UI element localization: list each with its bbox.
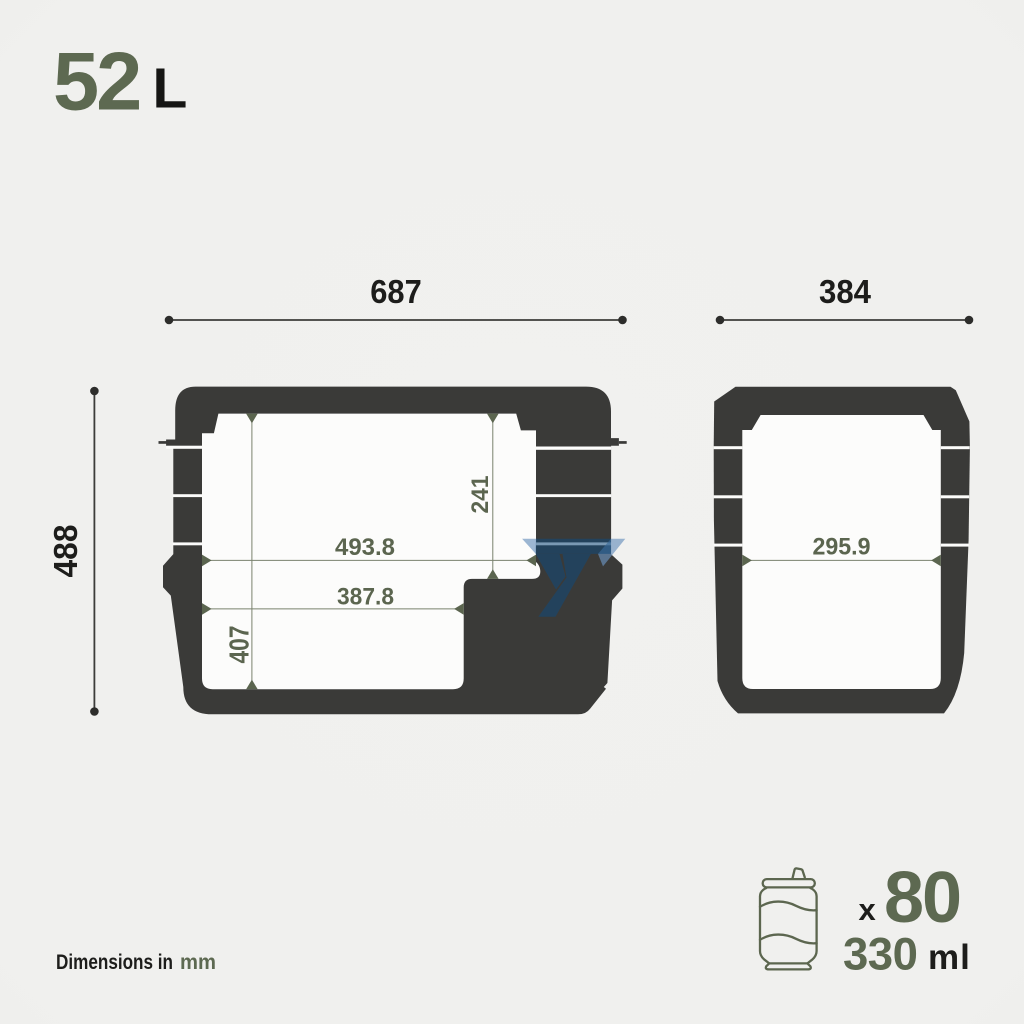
svg-text:mm: mm [180, 951, 216, 974]
svg-text:330: 330 [843, 929, 917, 980]
svg-text:407: 407 [224, 626, 255, 664]
svg-text:80: 80 [884, 858, 960, 938]
svg-text:52: 52 [53, 35, 139, 128]
svg-text:687: 687 [370, 273, 422, 310]
svg-text:L: L [153, 57, 188, 121]
svg-text:493.8: 493.8 [335, 534, 395, 561]
svg-text:Dimensions in: Dimensions in [56, 951, 173, 974]
svg-text:488: 488 [47, 525, 84, 578]
svg-text:ml: ml [928, 938, 971, 977]
svg-text:387.8: 387.8 [337, 584, 394, 611]
svg-text:384: 384 [819, 273, 872, 310]
svg-text:x: x [859, 892, 877, 927]
svg-text:295.9: 295.9 [813, 534, 871, 561]
svg-text:241: 241 [467, 476, 494, 514]
